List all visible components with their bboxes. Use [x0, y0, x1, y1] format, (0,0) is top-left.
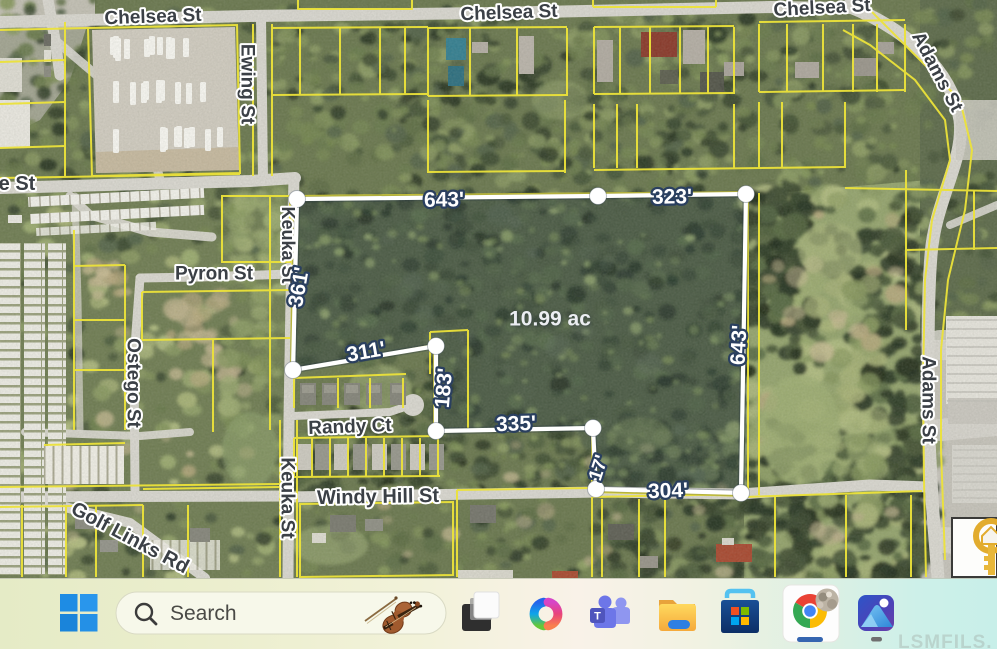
svg-text:183': 183'	[431, 367, 457, 409]
svg-text:LSMFILS. FIL: LSMFILS. FIL	[898, 632, 997, 649]
svg-text:Randy Ct: Randy Ct	[308, 415, 393, 439]
svg-text:Ewing St: Ewing St	[237, 44, 258, 125]
svg-text:e St: e St	[0, 173, 36, 195]
svg-text:643': 643'	[424, 188, 464, 212]
svg-text:Pyron St: Pyron St	[175, 264, 254, 285]
svg-text:335': 335'	[496, 412, 537, 436]
svg-text:10.99 ac: 10.99 ac	[509, 308, 591, 331]
svg-text:323': 323'	[652, 185, 692, 209]
svg-text:T: T	[594, 611, 601, 623]
svg-text:Search: Search	[170, 602, 237, 625]
svg-text:Chelsea St: Chelsea St	[460, 1, 558, 25]
svg-text:304': 304'	[648, 479, 689, 503]
svg-text:Adams St: Adams St	[918, 356, 939, 444]
svg-text:Keuka St: Keuka St	[277, 457, 298, 539]
svg-text:Chelsea St: Chelsea St	[104, 5, 202, 29]
svg-text:Ostego St: Ostego St	[123, 338, 144, 428]
svg-text:643': 643'	[726, 324, 751, 365]
svg-text:Windy Hill St: Windy Hill St	[317, 485, 440, 509]
